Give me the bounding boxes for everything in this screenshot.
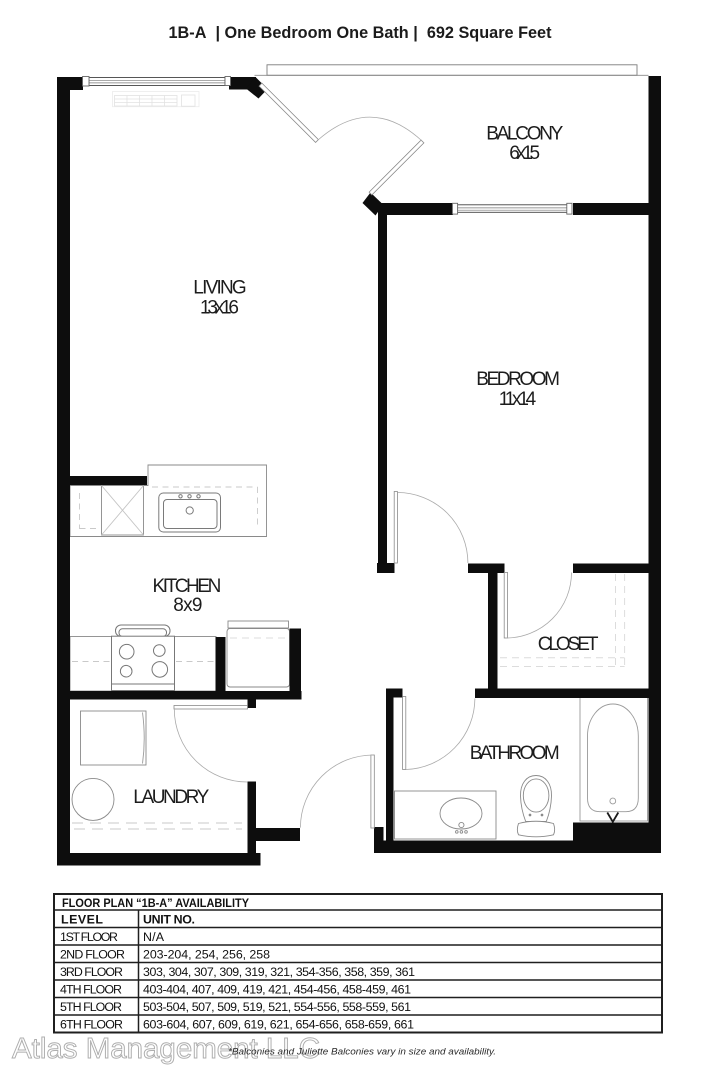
svg-text:*Balconies and Juliette Balcon: *Balconies and Juliette Balconies vary i…	[228, 1047, 496, 1058]
svg-text:6x15: 6x15	[509, 143, 540, 164]
svg-text:203-204, 254, 256, 258: 203-204, 254, 256, 258	[143, 947, 270, 961]
svg-text:CLOSET: CLOSET	[538, 634, 599, 655]
svg-text:2ND FLOOR: 2ND FLOOR	[60, 947, 125, 961]
svg-text:LIVING: LIVING	[193, 277, 246, 298]
svg-text:11x14: 11x14	[499, 389, 537, 410]
svg-text:LEVEL: LEVEL	[61, 912, 103, 926]
svg-text:1B-A | One Bedroom One Bath |: 1B-A | One Bedroom One Bath | 692 Square…	[169, 23, 552, 42]
svg-text:8x9: 8x9	[173, 595, 202, 616]
svg-text:BEDROOM: BEDROOM	[476, 369, 560, 390]
svg-text:N/A: N/A	[143, 930, 165, 944]
svg-text:BALCONY: BALCONY	[486, 124, 563, 145]
svg-text:FLOOR PLAN “1B-A” AVAILABILITY: FLOOR PLAN “1B-A” AVAILABILITY	[62, 896, 250, 910]
svg-text:503-504, 507, 509, 519, 521, 5: 503-504, 507, 509, 519, 521, 554-556, 55…	[143, 1000, 411, 1014]
svg-text:BATHROOM: BATHROOM	[470, 743, 560, 764]
svg-text:6TH FLOOR: 6TH FLOOR	[60, 1017, 123, 1031]
svg-text:LAUNDRY: LAUNDRY	[133, 787, 209, 808]
svg-text:UNIT NO.: UNIT NO.	[143, 912, 195, 926]
svg-text:4TH FLOOR: 4TH FLOOR	[60, 982, 122, 996]
svg-text:5TH FLOOR: 5TH FLOOR	[60, 1000, 122, 1014]
svg-text:1ST FLOOR: 1ST FLOOR	[60, 930, 118, 944]
svg-text:3RD FLOOR: 3RD FLOOR	[60, 965, 123, 979]
svg-text:303, 304, 307, 309, 319, 321,: 303, 304, 307, 309, 319, 321, 354-356, 3…	[143, 965, 415, 979]
svg-text:603-604, 607, 609, 619, 621, 6: 603-604, 607, 609, 619, 621, 654-656, 65…	[143, 1017, 414, 1031]
svg-text:13x16: 13x16	[200, 297, 239, 318]
svg-text:403-404, 407, 409, 419, 421, 4: 403-404, 407, 409, 419, 421, 454-456, 45…	[143, 982, 411, 996]
